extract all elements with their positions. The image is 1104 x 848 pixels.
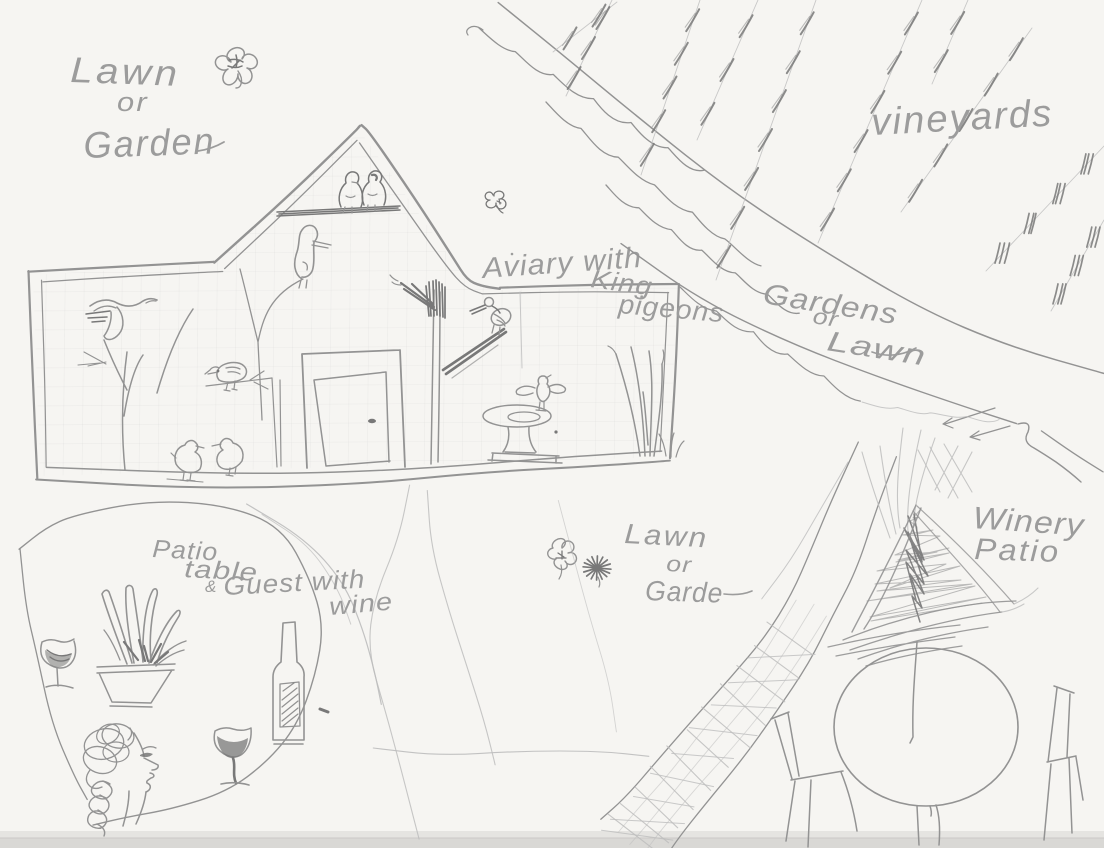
svg-text:Garden: Garden bbox=[83, 120, 216, 166]
svg-text:or: or bbox=[666, 551, 694, 577]
svg-text:or: or bbox=[117, 87, 149, 117]
svg-text:Patio: Patio bbox=[974, 533, 1061, 569]
svg-text:wine: wine bbox=[328, 588, 394, 621]
svg-text:&: & bbox=[205, 577, 216, 596]
svg-text:Lawn: Lawn bbox=[624, 518, 710, 553]
svg-text:Garde: Garde bbox=[645, 575, 724, 609]
